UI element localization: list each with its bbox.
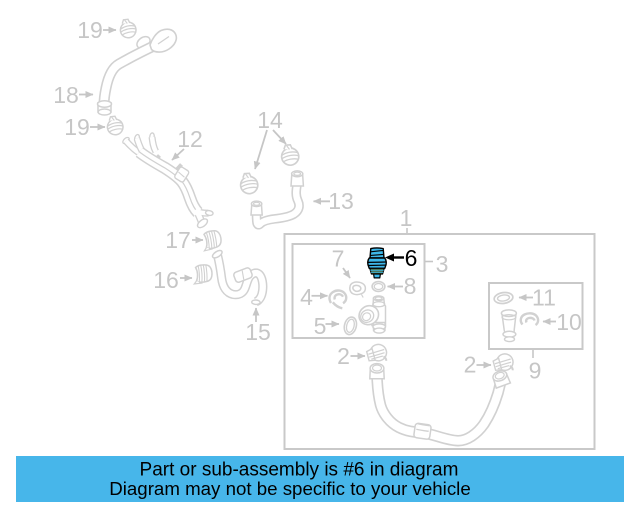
svg-text:6: 6 [405, 245, 418, 271]
svg-text:1: 1 [400, 205, 413, 231]
svg-text:Diagram may not be specific to: Diagram may not be specific to your vehi… [109, 478, 470, 499]
svg-text:8: 8 [404, 273, 417, 299]
svg-text:2: 2 [464, 351, 477, 377]
svg-text:3: 3 [436, 251, 449, 277]
svg-text:4: 4 [300, 284, 313, 310]
svg-text:2: 2 [337, 343, 350, 369]
svg-text:10: 10 [556, 309, 582, 335]
svg-text:7: 7 [332, 246, 345, 272]
svg-text:16: 16 [153, 267, 179, 293]
svg-text:13: 13 [328, 188, 354, 214]
svg-text:12: 12 [177, 126, 203, 152]
svg-text:17: 17 [165, 227, 191, 253]
svg-text:15: 15 [245, 319, 271, 345]
svg-text:5: 5 [314, 313, 327, 339]
svg-text:14: 14 [257, 107, 283, 133]
svg-text:19: 19 [77, 17, 103, 43]
svg-text:19: 19 [64, 114, 90, 140]
svg-text:9: 9 [529, 358, 542, 384]
svg-text:18: 18 [53, 82, 79, 108]
svg-text:11: 11 [532, 285, 556, 311]
